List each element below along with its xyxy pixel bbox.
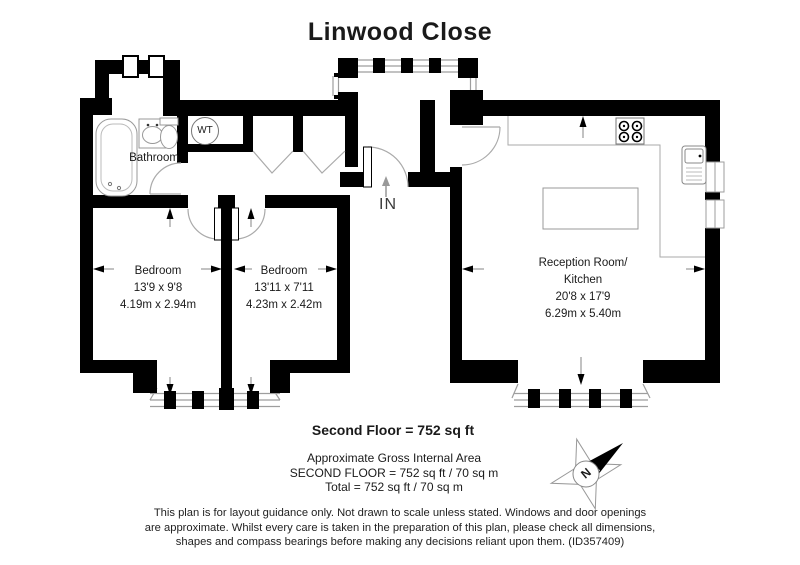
reception-size-imperial: 20'8 x 17'9 xyxy=(539,289,628,306)
reception-name-line1: Reception Room/ xyxy=(539,255,628,272)
disclaimer: This plan is for layout guidance only. N… xyxy=(145,506,656,550)
bedroom2-door-arc xyxy=(232,208,266,240)
bedroom1-door-arc xyxy=(188,208,222,240)
bedroom2-size-imperial: 13'11 x 7'11 xyxy=(246,280,322,297)
bathroom-door-arc xyxy=(150,163,181,194)
floor-total-line: Second Floor = 752 sq ft xyxy=(312,422,474,438)
bedroom1-size-imperial: 13'9 x 9'8 xyxy=(120,280,196,297)
hob-icon xyxy=(616,118,644,144)
reception-size-metric: 6.29m x 5.40m xyxy=(539,306,628,323)
reception-name-line2: Kitchen xyxy=(539,272,628,289)
bedroom1-size-metric: 4.19m x 2.94m xyxy=(120,297,196,314)
area-line1: SECOND FLOOR = 752 sq ft / 70 sq m xyxy=(290,466,498,481)
disclaimer-line3: shapes and compass bearings before makin… xyxy=(145,535,656,550)
entrance-in-label: IN xyxy=(379,196,397,214)
area-line2: Total = 752 sq ft / 70 sq m xyxy=(290,480,498,495)
kitchen-sink-icon xyxy=(682,146,706,184)
toilet-icon xyxy=(160,118,178,149)
disclaimer-line1: This plan is for layout guidance only. N… xyxy=(145,506,656,521)
bedroom1-name: Bedroom xyxy=(120,263,196,280)
disclaimer-line2: are approximate. Whilst every care is ta… xyxy=(145,521,656,536)
walls xyxy=(80,58,720,410)
entrance-arrow xyxy=(382,176,390,197)
reception-label: Reception Room/ Kitchen 20'8 x 17'9 6.29… xyxy=(539,255,628,323)
bedroom1-label: Bedroom 13'9 x 9'8 4.19m x 2.94m xyxy=(120,263,196,314)
floorplan-page: Linwood Close Bathroom WT IN Bedroom 13'… xyxy=(0,0,800,565)
water-tank-label: WT xyxy=(197,125,213,136)
bedroom2-size-metric: 4.23m x 2.42m xyxy=(246,297,322,314)
area-heading: Approximate Gross Internal Area xyxy=(290,451,498,466)
reception-door-arc xyxy=(462,127,500,165)
closet-doors xyxy=(253,151,345,173)
bedroom2-name: Bedroom xyxy=(246,263,322,280)
kitchen-counter xyxy=(508,116,705,257)
bathroom-label: Bathroom xyxy=(129,150,179,167)
area-summary: Approximate Gross Internal Area SECOND F… xyxy=(290,451,498,495)
kitchen-island xyxy=(543,188,638,229)
page-title: Linwood Close xyxy=(308,18,492,47)
bedroom2-label: Bedroom 13'11 x 7'11 4.23m x 2.42m xyxy=(246,263,322,314)
